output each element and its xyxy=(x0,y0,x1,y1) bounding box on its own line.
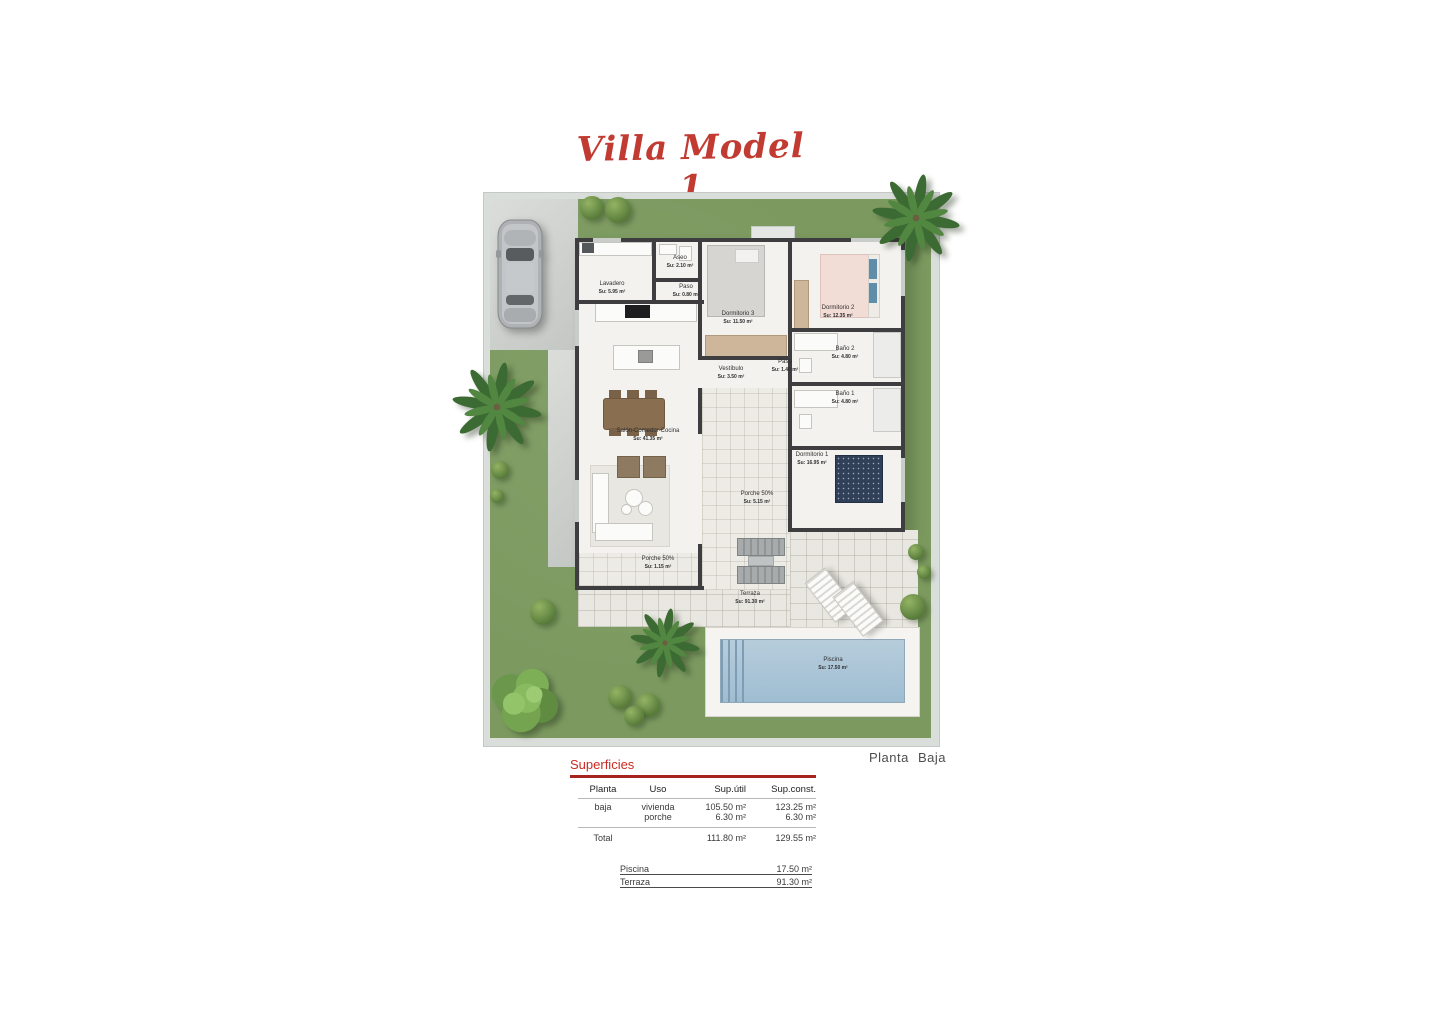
room-area: Su: 17.50 m² xyxy=(818,665,847,672)
outdoor-table xyxy=(748,556,774,566)
extra-label: Piscina xyxy=(620,864,649,874)
cell-const: 6.30 m² xyxy=(750,812,816,822)
extra-value: 91.30 m² xyxy=(776,877,812,887)
cell-planta: baja xyxy=(578,802,628,812)
room-area: Su: 1.40 m² xyxy=(772,367,799,374)
table-divider xyxy=(578,798,816,799)
bush xyxy=(908,544,924,560)
room-label-dormitorio-2: Dormitorio 2 Su: 12.35 m² xyxy=(822,305,855,319)
site-plan: Lavadero Su: 5.95 m² Aseo Su: 2.10 m² Pa… xyxy=(483,192,938,745)
wall-aseo-paso xyxy=(652,278,700,282)
room-name: Paso xyxy=(673,284,700,292)
wall-bottom-right xyxy=(790,528,905,532)
header-sup-const: Sup.const. xyxy=(750,784,816,795)
surfaces-table: Planta Uso Sup.útil Sup.const. baja vivi… xyxy=(578,784,816,843)
room-label-aseo: Aseo Su: 2.10 m² xyxy=(667,255,694,269)
bed-dormitorio-1 xyxy=(835,455,883,503)
bush xyxy=(608,685,632,709)
dining-chair xyxy=(627,390,639,398)
palm-tree xyxy=(868,170,964,266)
wall-bano2-bottom xyxy=(790,382,905,386)
table-divider xyxy=(578,827,816,828)
room-area: Su: 1.15 m² xyxy=(642,564,675,571)
surfaces-section: Superficies Planta Uso Sup.útil Sup.cons… xyxy=(570,757,816,843)
surfaces-title: Superficies xyxy=(570,757,816,772)
room-name: Terraza xyxy=(735,591,764,599)
bush xyxy=(490,489,504,503)
extra-value: 17.50 m² xyxy=(776,864,812,874)
plan-caption: Planta Baja xyxy=(869,750,946,765)
wall-aseo-left xyxy=(652,238,656,304)
dining-chair xyxy=(609,390,621,398)
pool xyxy=(720,639,905,703)
room-label-dormitorio-1: Dormitorio 1 Su: 16.95 m² xyxy=(796,452,829,466)
wall-bottom-left xyxy=(575,586,704,590)
bano1-shower xyxy=(873,388,901,432)
room-name: Dormitorio 2 xyxy=(822,305,855,313)
aseo-sink xyxy=(659,244,677,255)
sofa-bottom xyxy=(595,523,653,541)
pool-steps xyxy=(721,640,749,702)
porch-floor xyxy=(702,388,790,590)
room-name: Porche 50% xyxy=(642,556,675,564)
palm-tree xyxy=(627,605,703,681)
floor-plan-page: Villa Model 1 xyxy=(0,0,1440,1024)
room-area: Su: 0.80 m² xyxy=(673,292,700,299)
window-dorm1-right xyxy=(901,458,905,502)
washing-machine xyxy=(582,243,594,253)
bush xyxy=(900,594,926,620)
room-label-dormitorio-3: Dormitorio 3 Su: 11.50 m² xyxy=(722,311,755,325)
room-label-porche-grande: Porche 50% Su: 5.15 m² xyxy=(741,491,774,505)
room-label-bano-1: Baño 1 Su: 4.80 m² xyxy=(832,391,859,405)
total-label: Total xyxy=(578,833,628,843)
extra-row-terraza: Terraza 91.30 m² xyxy=(620,876,812,888)
pillow-dormitorio-3 xyxy=(735,249,759,263)
island-sink xyxy=(638,350,653,363)
extra-row-piscina: Piscina 17.50 m² xyxy=(620,863,812,875)
header-planta: Planta xyxy=(578,784,628,795)
table-row: porche 6.30 m² 6.30 m² xyxy=(578,812,816,822)
wall-dorm2-bottom xyxy=(790,328,905,332)
palm-tree xyxy=(448,358,546,456)
room-area: Su: 4.80 m² xyxy=(832,399,859,406)
room-area: Su: 11.50 m² xyxy=(722,319,755,326)
pillow-teal-2 xyxy=(869,283,877,303)
room-label-paso-mid: Paso Su: 1.40 m² xyxy=(772,359,799,373)
coffee-table xyxy=(638,501,653,516)
room-area: Su: 2.10 m² xyxy=(667,263,694,270)
cell-util: 105.50 m² xyxy=(688,802,750,812)
room-label-vestibulo: Vestíbulo Su: 3.50 m² xyxy=(718,366,745,380)
room-label-bano-2: Baño 2 Su: 4.80 m² xyxy=(832,346,859,360)
bush xyxy=(491,461,509,479)
table-row: baja vivienda 105.50 m² 123.25 m² xyxy=(578,802,816,812)
cell-uso: vivienda xyxy=(628,802,688,812)
room-name: Salón-Comedor-Cocina xyxy=(617,428,680,436)
bano2-shower xyxy=(873,332,901,378)
dining-chair xyxy=(645,390,657,398)
extra-surfaces: Piscina 17.50 m² Terraza 91.30 m² xyxy=(620,863,812,889)
armchair xyxy=(643,456,666,478)
room-label-salon: Salón-Comedor-Cocina Su: 41.35 m² xyxy=(617,428,680,442)
wall-porch-left-a xyxy=(698,388,702,434)
room-area: Su: 3.50 m² xyxy=(718,374,745,381)
room-area: Su: 4.80 m² xyxy=(832,354,859,361)
bush xyxy=(624,706,644,726)
wardrobe-dormitorio-3 xyxy=(705,335,787,357)
room-name: Aseo xyxy=(667,255,694,263)
room-name: Lavadero xyxy=(599,281,626,289)
cell-uso: porche xyxy=(628,812,688,822)
wall-bano1-bottom xyxy=(790,446,905,450)
extra-label: Terraza xyxy=(620,877,650,887)
bano1-toilet xyxy=(799,414,812,429)
car xyxy=(496,218,544,330)
room-area: Su: 12.35 m² xyxy=(822,313,855,320)
bush xyxy=(580,196,604,220)
room-name: Dormitorio 3 xyxy=(722,311,755,319)
room-label-paso-top: Paso Su: 0.80 m² xyxy=(673,284,700,298)
room-area: Su: 5.95 m² xyxy=(599,289,626,296)
wall-dorm3-left xyxy=(698,238,702,360)
header-uso: Uso xyxy=(628,784,688,795)
window-kitchen xyxy=(575,310,579,346)
bano2-toilet xyxy=(799,358,812,373)
wall-left xyxy=(575,238,579,590)
wardrobe-dormitorio-2 xyxy=(794,280,809,330)
room-name: Baño 2 xyxy=(832,346,859,354)
room-area: Su: 16.95 m² xyxy=(796,460,829,467)
room-area: Su: 41.35 m² xyxy=(617,436,680,443)
cell-util: 6.30 m² xyxy=(688,812,750,822)
room-label-piscina: Piscina Su: 17.50 m² xyxy=(818,657,847,671)
coffee-table xyxy=(621,504,632,515)
cooktop xyxy=(625,305,650,318)
walkway xyxy=(548,350,578,567)
room-name: Paso xyxy=(772,359,799,367)
bush xyxy=(530,599,556,625)
window-salon xyxy=(575,480,579,522)
room-label-terraza: Terraza Su: 91.30 m² xyxy=(735,591,764,605)
armchair xyxy=(617,456,640,478)
wall-lavadero-bottom xyxy=(575,300,704,304)
dining-table xyxy=(603,398,665,430)
total-const: 129.55 m² xyxy=(750,833,816,843)
bush xyxy=(605,197,631,223)
outdoor-sofa xyxy=(737,566,785,584)
room-name: Piscina xyxy=(818,657,847,665)
bush xyxy=(917,565,931,579)
room-name: Porche 50% xyxy=(741,491,774,499)
surfaces-title-underline xyxy=(570,775,816,778)
room-label-porche-pequeno: Porche 50% Su: 1.15 m² xyxy=(642,556,675,570)
room-name: Vestíbulo xyxy=(718,366,745,374)
tree xyxy=(479,654,571,746)
room-area: Su: 5.15 m² xyxy=(741,499,774,506)
room-name: Baño 1 xyxy=(832,391,859,399)
room-name: Dormitorio 1 xyxy=(796,452,829,460)
table-total-row: Total 111.80 m² 129.55 m² xyxy=(578,833,816,843)
room-area: Su: 91.30 m² xyxy=(735,599,764,606)
cell-const: 123.25 m² xyxy=(750,802,816,812)
wall-porch-left-b xyxy=(698,544,702,590)
total-util: 111.80 m² xyxy=(688,833,750,843)
outdoor-sofa xyxy=(737,538,785,556)
window-lavadero xyxy=(593,238,621,242)
porch-floor-small xyxy=(579,553,698,586)
table-header-row: Planta Uso Sup.útil Sup.const. xyxy=(578,784,816,795)
room-label-lavadero: Lavadero Su: 5.95 m² xyxy=(599,281,626,295)
header-sup-util: Sup.útil xyxy=(688,784,750,795)
